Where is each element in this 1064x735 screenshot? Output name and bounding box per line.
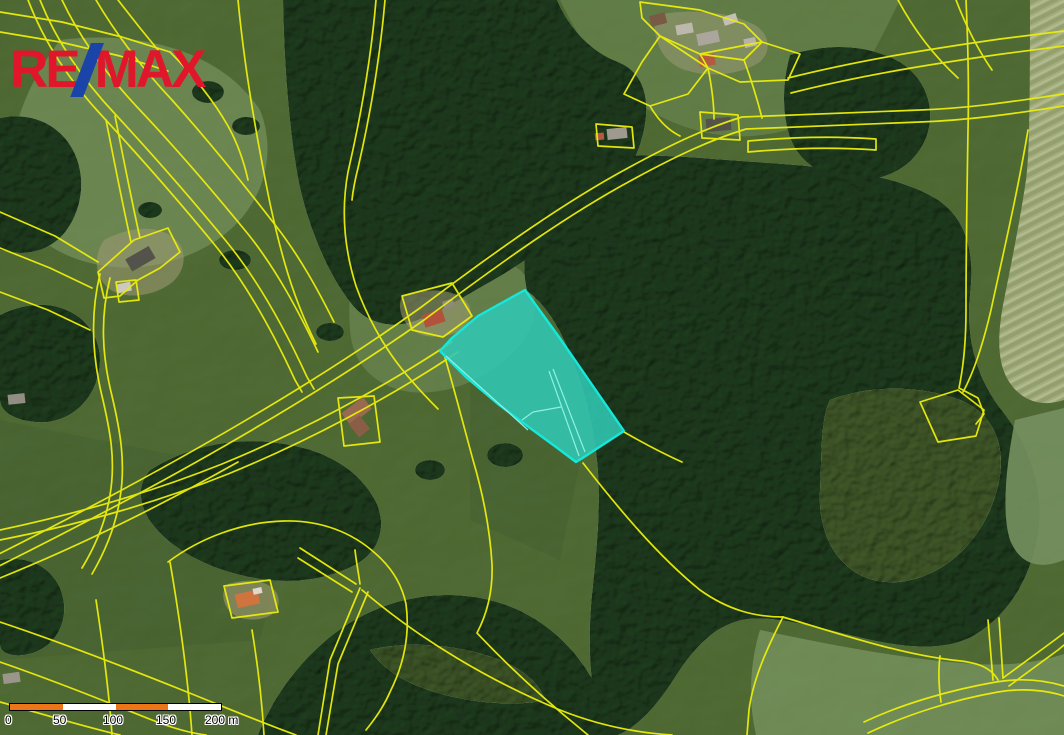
scale-segment [116, 704, 169, 710]
scale-tick-50: 50 [53, 713, 66, 727]
aerial-map-canvas [0, 0, 1064, 735]
scale-tick-0: 0 [5, 713, 12, 727]
scale-segment [10, 704, 63, 710]
scale-tick-100: 100 [103, 713, 123, 727]
scale-segment [168, 704, 221, 710]
property-map[interactable]: RE MAX 0 50 100 150 200 m [0, 0, 1064, 735]
logo-re: RE [10, 43, 78, 96]
scale-segment [63, 704, 116, 710]
scale-bar-segments [9, 703, 222, 711]
scale-tick-150: 150 [156, 713, 176, 727]
scale-bar: 0 50 100 150 200 m [9, 703, 222, 729]
meadow-patch [1005, 408, 1064, 565]
remax-logo: RE MAX [10, 42, 203, 96]
logo-max: MAX [95, 43, 204, 96]
scale-bar-labels: 0 50 100 150 200 m [9, 713, 222, 729]
scale-end-label: 200 m [205, 713, 238, 727]
